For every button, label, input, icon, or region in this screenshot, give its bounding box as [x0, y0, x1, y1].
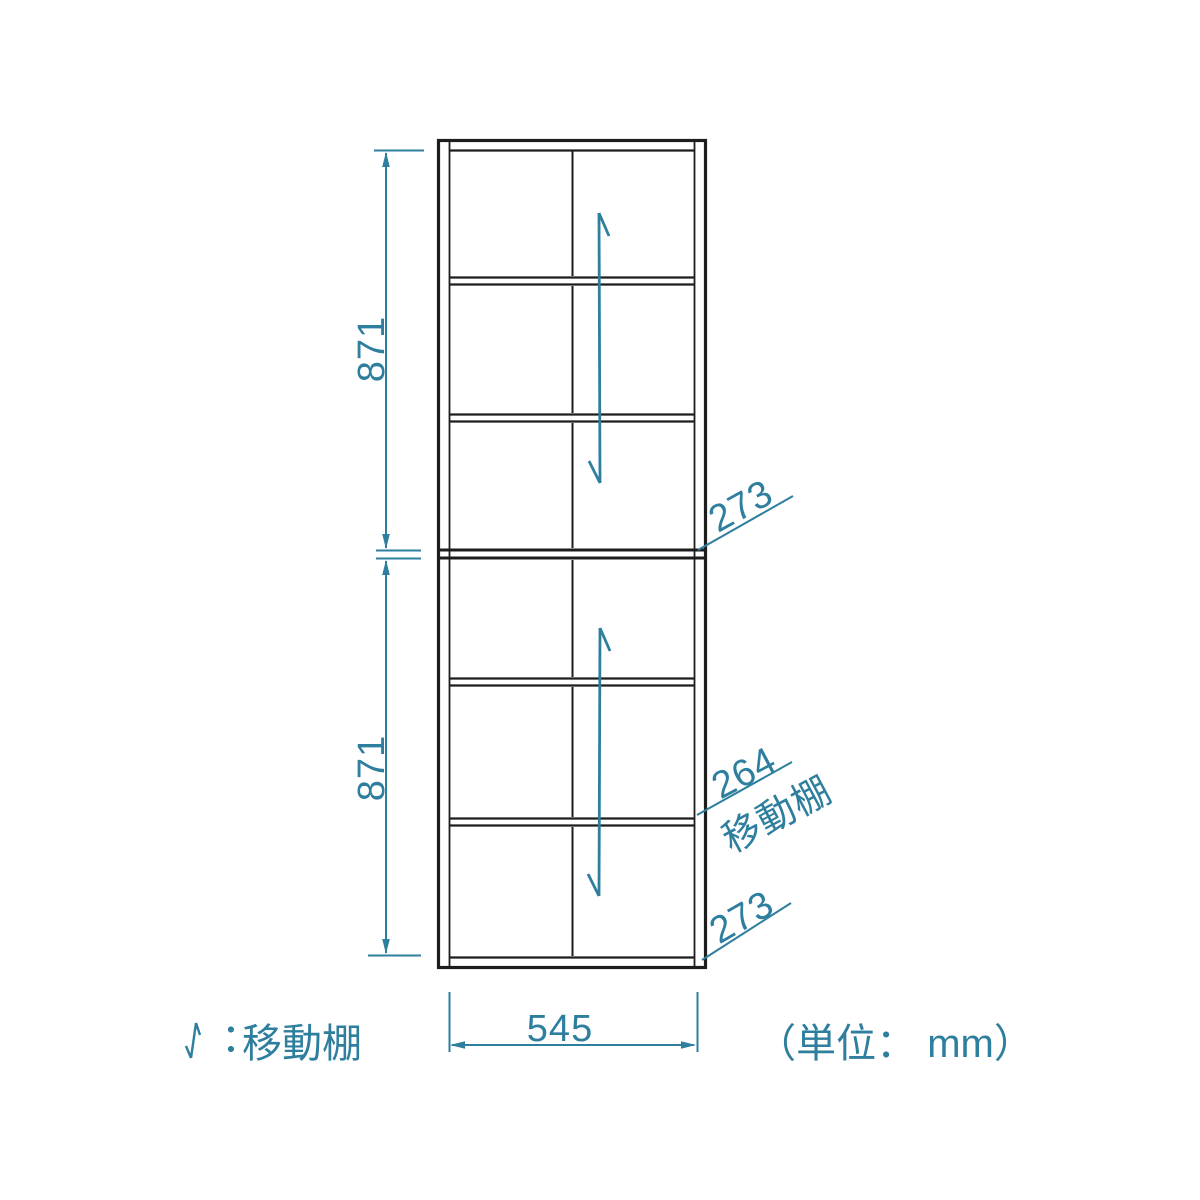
dimension-drawing-canvas: 871 871 273 264 移動棚 273 545 ︓移動棚 （単位： mm… [0, 0, 1200, 1200]
movable-shelf-legend-icon [186, 1023, 200, 1058]
lower-height-arrow-down [382, 939, 390, 954]
width-value: 545 [527, 1008, 593, 1050]
upper-pitch-value: 273 [702, 472, 780, 541]
upper-range-arrow-top-barb [599, 213, 609, 236]
lower-movable-range-arrow [588, 628, 610, 896]
unit-note: （単位： mm） [756, 1022, 1034, 1066]
upper-range-arrow-shaft [599, 213, 600, 483]
width-arrow-right [681, 1041, 696, 1049]
dimension-arrowhead-group [382, 152, 696, 1049]
lower-range-arrow-top-barb [600, 628, 610, 651]
cabinet-outline-group [438, 141, 706, 968]
dimension-text-group: 871 871 273 264 移動棚 273 545 ︓移動棚 （単位： mm… [202, 316, 1034, 1066]
lower-range-arrow-bottom-barb [588, 874, 599, 896]
legend-icon-shaft [191, 1023, 196, 1058]
lower-height-arrow-up [382, 560, 390, 575]
legend-icon-top-barb [196, 1023, 200, 1035]
width-arrow-left [450, 1041, 465, 1049]
upper-range-arrow-bottom-barb [589, 461, 600, 483]
upper-movable-range-arrow [589, 213, 609, 483]
lower-height-value: 871 [351, 735, 393, 801]
upper-height-arrow-down [382, 534, 390, 549]
legend-label: ︓移動棚 [202, 1022, 362, 1066]
upper-height-arrow-up [382, 152, 390, 167]
dimension-line-group [186, 151, 793, 1059]
lower-pitch-value: 273 [703, 883, 782, 953]
upper-height-value: 871 [351, 316, 393, 382]
lower-range-arrow-shaft [599, 628, 600, 896]
legend-icon-bottom-barb [186, 1046, 191, 1058]
